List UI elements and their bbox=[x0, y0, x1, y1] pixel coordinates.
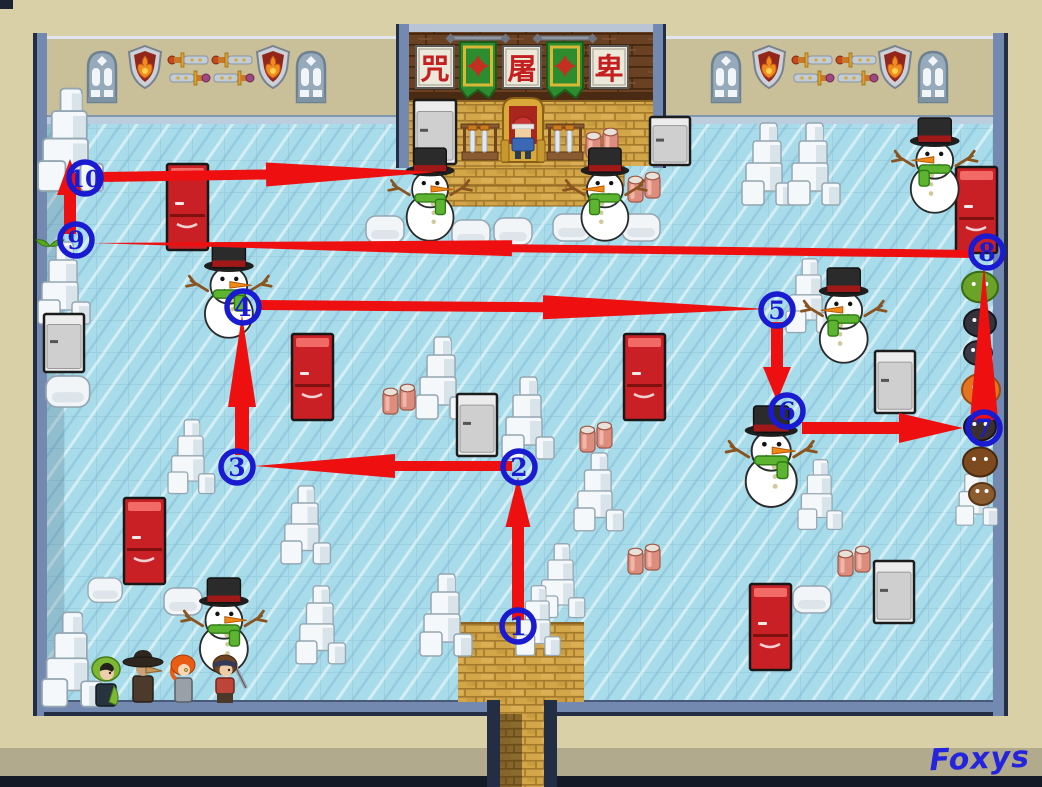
waypoint-number: 10 bbox=[69, 166, 101, 193]
red-fridge bbox=[750, 584, 791, 670]
snow-boulder bbox=[46, 376, 90, 407]
jar bbox=[628, 548, 643, 574]
jar bbox=[580, 426, 595, 452]
route-waypoint-10: 10 bbox=[69, 162, 101, 194]
jar bbox=[838, 550, 853, 576]
waypoint-number: 6 bbox=[778, 397, 795, 426]
snow-boulder bbox=[793, 586, 831, 613]
wall-window-icon bbox=[88, 52, 116, 102]
white-fridge bbox=[875, 351, 915, 413]
sign-character: 屠 bbox=[507, 52, 536, 86]
wall-sign: 咒 bbox=[416, 46, 454, 88]
wall-sign: 屠 bbox=[503, 46, 541, 88]
jar bbox=[400, 384, 415, 410]
red-fridge bbox=[124, 498, 165, 584]
jar bbox=[855, 546, 870, 572]
waypoint-number: 4 bbox=[234, 293, 251, 322]
waypoint-number: 8 bbox=[978, 238, 995, 267]
jar bbox=[645, 172, 660, 198]
monster[interactable] bbox=[962, 272, 998, 303]
snow-boulder bbox=[366, 216, 404, 243]
scene-canvas: 咒 屠 卑 bbox=[0, 0, 1042, 787]
waypoint-number: 2 bbox=[510, 453, 527, 482]
waypoint-number: 7 bbox=[975, 414, 992, 443]
wall-window-icon bbox=[712, 52, 740, 102]
snow-boulder bbox=[88, 578, 122, 602]
waypoint-number: 3 bbox=[228, 453, 245, 482]
jar bbox=[645, 544, 660, 570]
red-fridge bbox=[292, 334, 333, 420]
jar bbox=[597, 422, 612, 448]
white-fridge bbox=[650, 117, 690, 165]
waypoint-number: 5 bbox=[768, 296, 785, 325]
sign-character: 咒 bbox=[420, 52, 449, 86]
wall-sign: 卑 bbox=[590, 46, 628, 88]
white-fridge bbox=[457, 394, 497, 456]
monster[interactable] bbox=[969, 483, 995, 505]
white-fridge bbox=[874, 561, 914, 623]
red-fridge bbox=[624, 334, 665, 420]
wall-window-icon bbox=[919, 52, 947, 102]
waypoint-number: 9 bbox=[67, 226, 84, 255]
jar bbox=[383, 388, 398, 414]
watermark: Foxys bbox=[899, 740, 1030, 780]
wall-window-icon bbox=[297, 52, 325, 102]
game-viewport: 咒 屠 卑 bbox=[0, 0, 1042, 787]
sign-character: 卑 bbox=[594, 52, 623, 86]
white-fridge bbox=[44, 314, 84, 372]
player-orange-hair[interactable] bbox=[171, 655, 195, 702]
waypoint-number: 1 bbox=[509, 612, 526, 641]
monster[interactable] bbox=[963, 448, 997, 477]
scene-host: 咒 屠 卑 bbox=[0, 0, 1042, 787]
